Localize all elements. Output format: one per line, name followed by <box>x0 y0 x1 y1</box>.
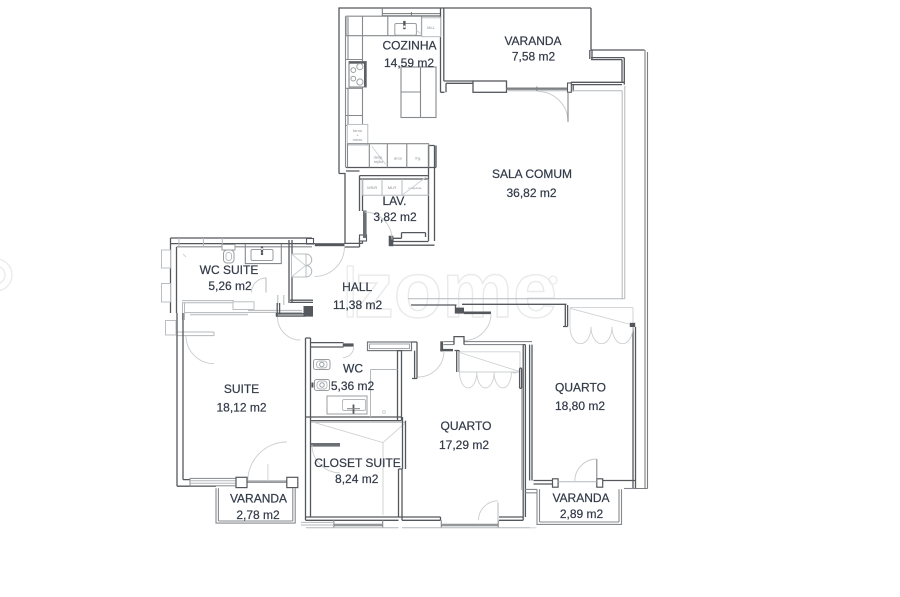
svg-text:5,36 m2: 5,36 m2 <box>331 379 375 393</box>
svg-text:18,12 m2: 18,12 m2 <box>216 401 266 415</box>
svg-text:arca: arca <box>394 156 403 161</box>
svg-text:QUARTO: QUARTO <box>555 381 606 395</box>
svg-text:VARANDA: VARANDA <box>552 491 609 505</box>
svg-text:36,82 m2: 36,82 m2 <box>506 186 556 200</box>
svg-text:18,80 m2: 18,80 m2 <box>555 399 605 413</box>
svg-text:MLL: MLL <box>427 25 436 30</box>
svg-text:7,58 m2: 7,58 m2 <box>512 50 556 64</box>
svg-text:LAV.: LAV. <box>382 194 406 208</box>
svg-text:micro: micro <box>353 137 364 142</box>
svg-text:WC SUITE: WC SUITE <box>200 263 259 277</box>
svg-text:COZINHA: COZINHA <box>383 39 437 53</box>
svg-text:14,59 m2: 14,59 m2 <box>384 56 434 70</box>
svg-text:2,89 m2: 2,89 m2 <box>560 507 604 521</box>
svg-text:SALA COMUM: SALA COMUM <box>492 167 572 181</box>
svg-text:HALL: HALL <box>342 280 372 294</box>
svg-text:MS/R: MS/R <box>367 185 377 190</box>
svg-text:CLOSET SUITE: CLOSET SUITE <box>314 456 400 470</box>
svg-text:5,26 m2: 5,26 m2 <box>208 279 252 293</box>
svg-text:SUITE: SUITE <box>224 382 259 396</box>
svg-text:zome: zome <box>354 245 557 334</box>
svg-text:VARANDA: VARANDA <box>504 34 561 48</box>
svg-text:frg.: frg. <box>415 156 421 161</box>
svg-text:QUARTO: QUARTO <box>441 419 492 433</box>
svg-text:11,38 m2: 11,38 m2 <box>333 298 382 312</box>
svg-text:8,24 m2: 8,24 m2 <box>335 472 379 486</box>
svg-text:VARANDA: VARANDA <box>230 492 287 506</box>
svg-text:maquinas: maquinas <box>408 186 422 190</box>
svg-text:2,78 m2: 2,78 m2 <box>236 508 280 522</box>
svg-text:WC: WC <box>343 362 363 376</box>
svg-text:MLR: MLR <box>388 185 397 190</box>
svg-text:17,29 m2: 17,29 m2 <box>439 438 489 452</box>
svg-text:3,82 m2: 3,82 m2 <box>373 210 417 224</box>
svg-text:tejão: tejão <box>374 159 383 164</box>
